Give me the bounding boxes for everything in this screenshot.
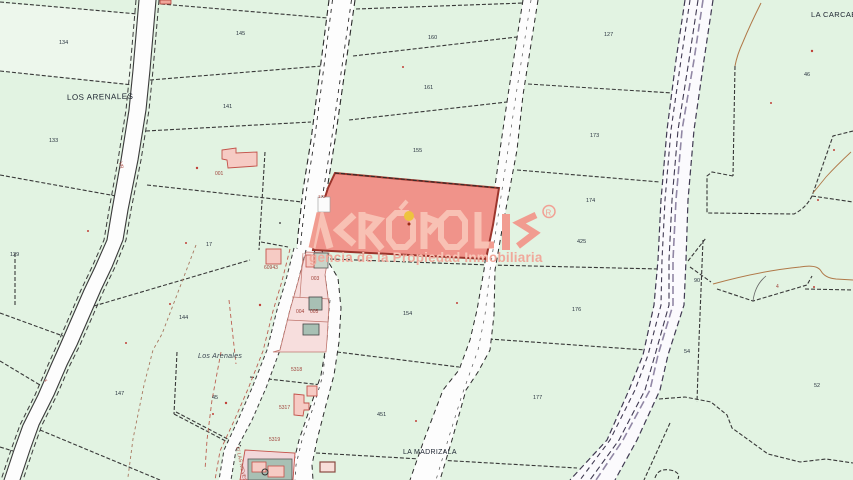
svg-text:425: 425	[577, 239, 586, 245]
svg-text:60943: 60943	[264, 265, 278, 271]
svg-text:173: 173	[590, 133, 599, 139]
svg-text:4: 4	[776, 284, 779, 290]
svg-text:003: 003	[311, 276, 320, 282]
svg-text:Los Arenales: Los Arenales	[198, 353, 242, 360]
svg-text:17: 17	[206, 242, 212, 248]
svg-text:54: 54	[684, 349, 690, 355]
svg-text:45: 45	[212, 395, 218, 401]
svg-text:144: 144	[179, 315, 188, 321]
svg-text:005: 005	[310, 309, 319, 315]
svg-text:90: 90	[694, 278, 700, 284]
svg-text:5317: 5317	[279, 405, 290, 411]
svg-text:VR: VR	[117, 161, 124, 169]
svg-text:52: 52	[814, 383, 820, 389]
svg-text:141: 141	[223, 104, 232, 110]
svg-text:LOS ARENALES: LOS ARENALES	[67, 92, 134, 102]
svg-text:134: 134	[59, 40, 68, 46]
svg-text:145: 145	[236, 31, 245, 37]
svg-text:5319: 5319	[269, 437, 280, 443]
svg-text:R: R	[546, 209, 552, 218]
svg-text:451: 451	[377, 412, 386, 418]
svg-text:177: 177	[533, 395, 542, 401]
svg-text:172: 172	[318, 194, 326, 199]
svg-text:133: 133	[49, 138, 58, 144]
svg-text:127: 127	[604, 32, 613, 38]
svg-text:129: 129	[10, 252, 19, 258]
svg-text:174: 174	[586, 198, 595, 204]
svg-text:147: 147	[115, 391, 124, 397]
svg-text:5318: 5318	[291, 367, 302, 373]
svg-text:004: 004	[296, 309, 305, 315]
svg-text:LA MADRIZALA: LA MADRIZALA	[403, 449, 457, 456]
svg-text:001: 001	[215, 171, 224, 177]
svg-text:154: 154	[403, 311, 412, 317]
svg-text:46: 46	[804, 72, 810, 78]
svg-text:155: 155	[413, 148, 422, 154]
svg-text:160: 160	[428, 35, 437, 41]
svg-text:LA CARCAB: LA CARCAB	[811, 10, 853, 19]
svg-text:161: 161	[424, 85, 433, 91]
svg-text:176: 176	[572, 307, 581, 313]
